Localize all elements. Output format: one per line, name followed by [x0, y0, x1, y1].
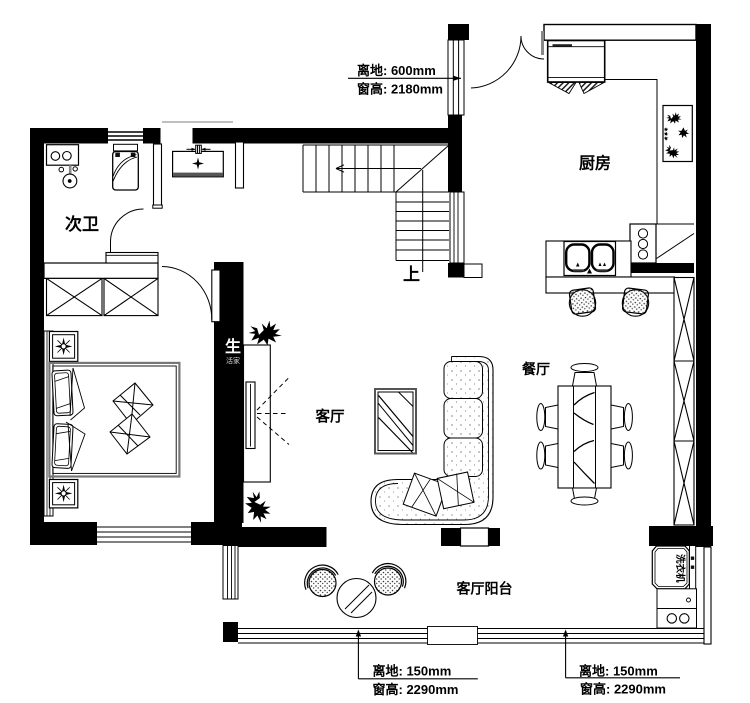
svg-text:洗衣机: 洗衣机 — [674, 554, 686, 583]
svg-text:离地: 600mm: 离地: 600mm — [357, 63, 436, 78]
svg-text:次卫: 次卫 — [65, 214, 99, 234]
svg-text:餐厅: 餐厅 — [521, 361, 550, 377]
svg-text:活家: 活家 — [226, 356, 240, 365]
svg-text:厨房: 厨房 — [579, 154, 611, 173]
svg-text:生: 生 — [225, 337, 241, 356]
svg-text:客厅阳台: 客厅阳台 — [456, 581, 513, 597]
svg-text:窗高: 2290mm: 窗高: 2290mm — [580, 682, 666, 697]
svg-text:离地: 150mm: 离地: 150mm — [373, 664, 452, 679]
svg-text:窗高: 2290mm: 窗高: 2290mm — [373, 682, 459, 697]
svg-text:离地: 150mm: 离地: 150mm — [579, 664, 658, 679]
svg-text:上: 上 — [403, 265, 420, 284]
svg-text:窗高: 2180mm: 窗高: 2180mm — [357, 82, 443, 97]
svg-text:客厅: 客厅 — [315, 408, 345, 426]
